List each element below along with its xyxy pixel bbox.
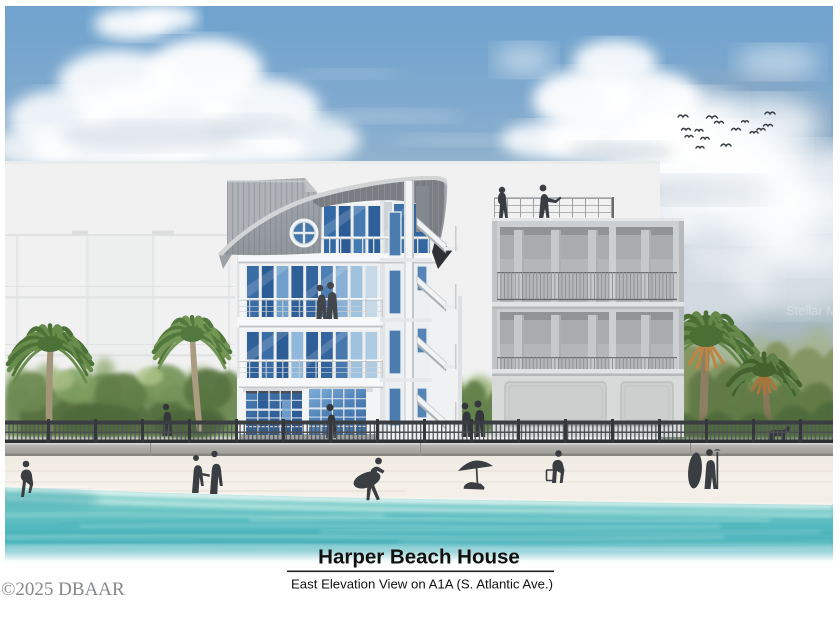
svg-text:Stellar MLS: Stellar MLS xyxy=(786,303,840,318)
svg-text:Harper Beach House: Harper Beach House xyxy=(318,546,520,569)
svg-text:©2025 DBAAR: ©2025 DBAAR xyxy=(1,579,125,600)
svg-text:East Elevation View on A1A (S.: East Elevation View on A1A (S. Atlantic … xyxy=(291,577,553,592)
